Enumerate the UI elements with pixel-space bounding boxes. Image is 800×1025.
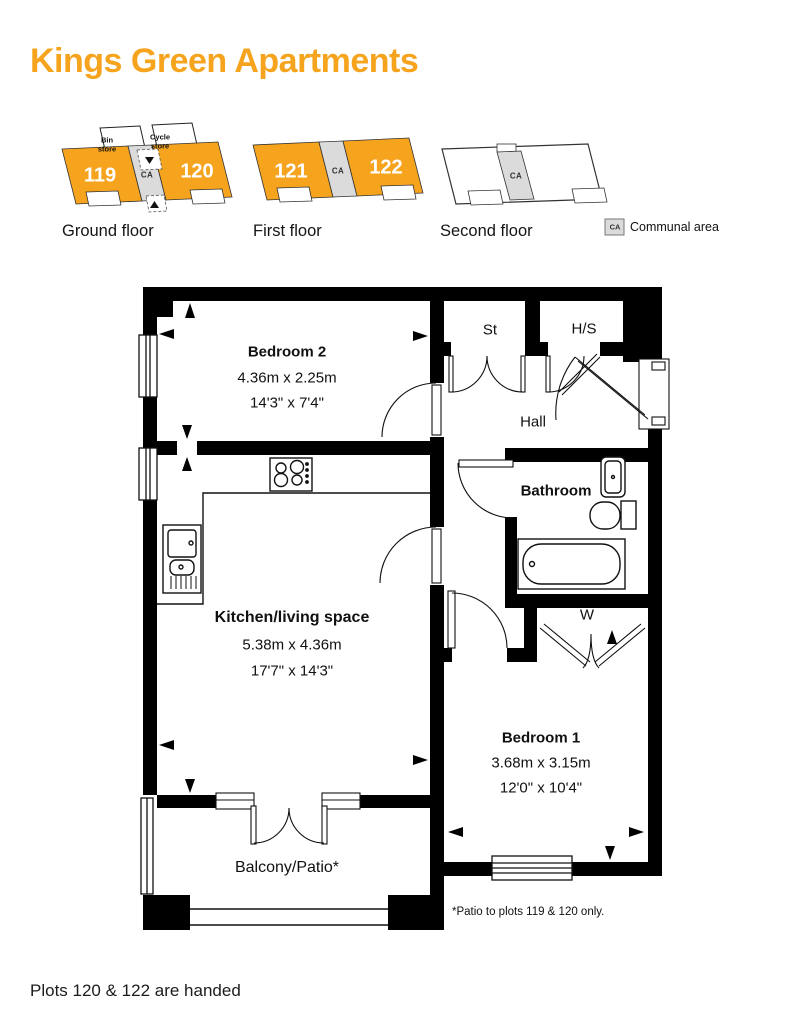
ca-label-ground: CA — [141, 171, 153, 180]
ground-floor-label: Ground floor — [62, 222, 154, 241]
second-floor-notch-right — [572, 188, 607, 203]
kitchen-name: Kitchen/living space — [215, 609, 370, 627]
second-floor-notch — [497, 144, 516, 152]
bedroom1-name: Bedroom 1 — [502, 730, 580, 747]
plot-121-label: 121 — [274, 161, 307, 184]
first-floor-label: First floor — [253, 222, 322, 241]
arrow-down-icon — [185, 779, 195, 793]
store-room-label: St — [483, 322, 497, 339]
kitchen-door-leaf — [432, 529, 441, 583]
arrow-left-icon — [448, 827, 463, 837]
arrow-left-icon — [159, 740, 174, 750]
st-door-arc-left — [451, 356, 487, 392]
bin-store-label: Bin store — [91, 137, 123, 154]
bedroom1-door-leaf — [448, 591, 455, 648]
arrow-right-icon — [413, 331, 428, 341]
basin-icon — [601, 457, 625, 497]
bedroom1-door-arc — [452, 593, 507, 648]
ca-label-second: CA — [510, 172, 522, 181]
hs-room-label: H/S — [571, 321, 596, 338]
patio-note: *Patio to plots 119 & 120 only. — [452, 906, 604, 918]
arrow-up-icon — [182, 457, 192, 471]
balcony-french-doors — [216, 793, 360, 844]
toilet-icon — [590, 501, 636, 529]
plot-122-label: 122 — [369, 157, 402, 180]
entrance-door-leaf — [578, 361, 648, 419]
plot-119-label: 119 — [84, 165, 116, 188]
key-second-floor-diagram — [442, 144, 607, 205]
bedroom1-metric: 3.68m x 3.15m — [491, 755, 590, 772]
legend-communal-label: Communal area — [630, 220, 719, 234]
plot-120-entrance-notch — [190, 189, 225, 204]
hall-label: Hall — [520, 414, 546, 431]
bathroom-door-arc — [458, 463, 513, 518]
floorplan-graphics — [0, 0, 800, 1025]
hs-door-leaf — [546, 356, 550, 392]
st-door-leaf-right — [521, 356, 525, 392]
wardrobe-label: W — [580, 607, 594, 624]
hob-icon — [270, 458, 312, 491]
plot-119-entrance-notch — [86, 191, 121, 206]
bedroom2-imperial: 14'3" x 7'4" — [250, 395, 324, 412]
arrow-right-icon — [629, 827, 644, 837]
ca-label-first: CA — [332, 167, 344, 176]
bedroom2-window — [139, 335, 157, 397]
plot-120-label: 120 — [180, 161, 213, 184]
balcony-label: Balcony/Patio* — [235, 859, 339, 877]
handed-note: Plots 120 & 122 are handed — [30, 981, 241, 1001]
bathroom-door-leaf — [459, 460, 513, 467]
balcony-railing — [190, 909, 388, 925]
floorplan-page: Kings Green Apartments — [0, 0, 800, 1025]
st-door-leaf-left — [449, 356, 453, 392]
arrow-up-icon — [185, 303, 195, 318]
arrow-left-icon — [159, 329, 174, 339]
bathroom-label: Bathroom — [521, 483, 592, 500]
bedroom2-name: Bedroom 2 — [248, 344, 326, 361]
sink-icon — [163, 525, 201, 593]
bathtub-icon — [518, 539, 625, 589]
kitchen-window — [139, 448, 157, 500]
entrance-marker-bottom — [146, 195, 167, 212]
bedroom2-door-leaf — [432, 385, 441, 435]
legend-ca-label: CA — [610, 223, 621, 232]
bathroom-fixtures — [518, 457, 636, 589]
plot-122-entrance-notch — [381, 185, 416, 200]
bedroom2-door-arc — [382, 383, 436, 437]
plot-121-entrance-notch — [277, 187, 312, 202]
second-floor-label: Second floor — [440, 222, 533, 241]
st-door-arc-right — [487, 356, 523, 392]
kitchen-imperial: 17'7" x 14'3" — [251, 663, 333, 680]
arrow-down-icon — [182, 425, 192, 439]
hs-diagonal-door — [562, 357, 600, 395]
entrance-door-arc — [556, 357, 575, 420]
arrow-up-icon — [607, 630, 617, 644]
kitchen-metric: 5.38m x 4.36m — [242, 637, 341, 654]
arrow-down-icon — [605, 846, 615, 860]
second-floor-notch-left — [468, 190, 503, 205]
kitchen-fixtures — [157, 458, 430, 604]
cycle-store-label: Cycle store — [144, 134, 176, 151]
kitchen-door-arc — [380, 527, 436, 583]
bedroom2-metric: 4.36m x 2.25m — [237, 370, 336, 387]
bedroom1-imperial: 12'0" x 10'4" — [500, 780, 582, 797]
wardrobe-bifold-doors — [540, 624, 645, 668]
arrow-right-icon — [413, 755, 428, 765]
